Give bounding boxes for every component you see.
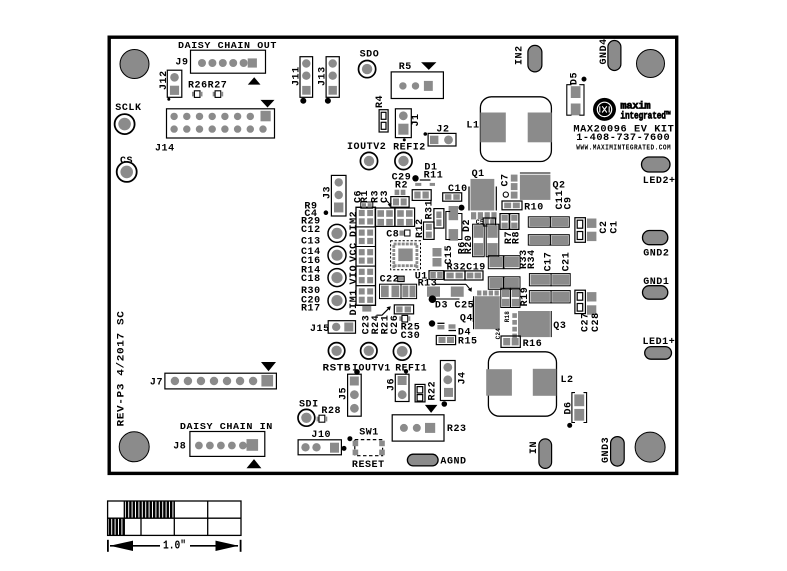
svg-text:C30: C30 [401, 331, 421, 342]
svg-text:1.0″: 1.0″ [163, 539, 186, 552]
svg-text:DIM2: DIM2 [349, 211, 360, 237]
svg-text:D6: D6 [563, 401, 574, 414]
svg-text:VCC: VCC [349, 242, 360, 262]
svg-text:C2: C2 [599, 220, 610, 233]
svg-text:R5: R5 [399, 62, 412, 73]
svg-text:DIM1: DIM1 [349, 289, 360, 315]
svg-text:DAISY CHAIN OUT: DAISY CHAIN OUT [178, 40, 277, 51]
svg-text:R15: R15 [458, 337, 478, 348]
svg-text:C7: C7 [501, 173, 512, 186]
svg-text:C12: C12 [301, 225, 321, 236]
svg-text:L1: L1 [466, 121, 479, 132]
svg-text:J5: J5 [338, 387, 349, 400]
svg-text:J6: J6 [386, 378, 397, 391]
svg-text:J12: J12 [159, 70, 170, 90]
svg-text:GND2: GND2 [643, 249, 669, 260]
svg-text:R4: R4 [375, 95, 386, 108]
svg-text:R18: R18 [504, 311, 511, 323]
svg-text:AGND: AGND [440, 456, 466, 467]
svg-text:C3: C3 [380, 190, 391, 203]
svg-text:J4: J4 [458, 371, 469, 384]
svg-text:Q2: Q2 [553, 180, 566, 191]
svg-text:C8: C8 [386, 229, 399, 240]
svg-text:C10: C10 [448, 184, 468, 195]
svg-text:R10: R10 [524, 202, 544, 213]
svg-text:J14: J14 [155, 144, 175, 155]
svg-text:IN: IN [529, 441, 540, 454]
svg-text:REFI2: REFI2 [393, 143, 426, 154]
svg-text:LED2+: LED2+ [643, 176, 676, 187]
svg-text:R23: R23 [447, 424, 467, 435]
svg-text:SDO: SDO [360, 50, 380, 61]
svg-text:R12: R12 [415, 218, 426, 238]
svg-text:J3: J3 [323, 186, 334, 199]
svg-text:C17: C17 [544, 252, 555, 272]
svg-text:R16: R16 [523, 339, 543, 350]
svg-text:WWW.MAXIMINTEGRATED.COM: WWW.MAXIMINTEGRATED.COM [576, 144, 671, 152]
svg-text:J15: J15 [310, 324, 330, 335]
svg-text:J8: J8 [173, 442, 186, 453]
svg-text:RSTB: RSTB [323, 364, 352, 375]
svg-text:R8: R8 [511, 231, 522, 244]
svg-text:C28: C28 [591, 312, 602, 332]
svg-text:REV-P3 4/2017 SC: REV-P3 4/2017 SC [115, 311, 127, 427]
svg-text:J7: J7 [150, 377, 163, 388]
svg-text:REFI1: REFI1 [395, 364, 427, 375]
svg-text:GND4: GND4 [599, 38, 610, 64]
svg-text:J13: J13 [317, 66, 328, 86]
svg-text:D5: D5 [570, 72, 581, 85]
svg-text:SCLK: SCLK [115, 103, 141, 114]
svg-text:C29: C29 [392, 172, 412, 183]
svg-text:C21: C21 [562, 252, 573, 272]
svg-text:Q1: Q1 [472, 169, 485, 180]
svg-text:D2: D2 [462, 219, 473, 232]
svg-text:SDI: SDI [299, 399, 319, 410]
svg-text:L2: L2 [561, 375, 574, 386]
svg-text:R32C19: R32C19 [447, 263, 486, 274]
svg-text:R20: R20 [464, 235, 475, 255]
svg-text:J1: J1 [411, 113, 422, 126]
svg-text:C18: C18 [301, 274, 321, 285]
svg-text:integrated™: integrated™ [620, 110, 671, 122]
svg-text:C27: C27 [581, 312, 592, 332]
svg-text:DAISY CHAIN IN: DAISY CHAIN IN [180, 421, 273, 432]
svg-text:VIO: VIO [349, 265, 360, 285]
svg-text:R1: R1 [360, 190, 371, 203]
svg-text:Q3: Q3 [553, 321, 566, 332]
svg-text:R17: R17 [301, 303, 321, 314]
svg-text:R26R27: R26R27 [188, 81, 227, 92]
svg-text:J9: J9 [175, 57, 188, 68]
svg-text:D3 C25: D3 C25 [435, 300, 474, 311]
svg-text:RESET: RESET [352, 460, 385, 471]
svg-text:Q4: Q4 [460, 313, 473, 324]
svg-text:J11: J11 [291, 66, 302, 86]
svg-text:R34: R34 [527, 249, 538, 269]
svg-text:R19: R19 [520, 287, 531, 307]
svg-text:C1: C1 [610, 220, 621, 233]
svg-text:GND3: GND3 [601, 437, 612, 463]
svg-text:SW1: SW1 [359, 427, 379, 438]
svg-text:IN2: IN2 [515, 45, 526, 65]
svg-text:IOUTV2: IOUTV2 [347, 142, 386, 153]
svg-text:C9: C9 [564, 196, 575, 209]
svg-text:C13: C13 [301, 237, 321, 248]
svg-text:C15: C15 [444, 245, 455, 265]
svg-text:R22: R22 [428, 381, 439, 401]
svg-text:J10: J10 [311, 430, 331, 441]
svg-text:1-408-737-7600: 1-408-737-7600 [576, 132, 670, 144]
